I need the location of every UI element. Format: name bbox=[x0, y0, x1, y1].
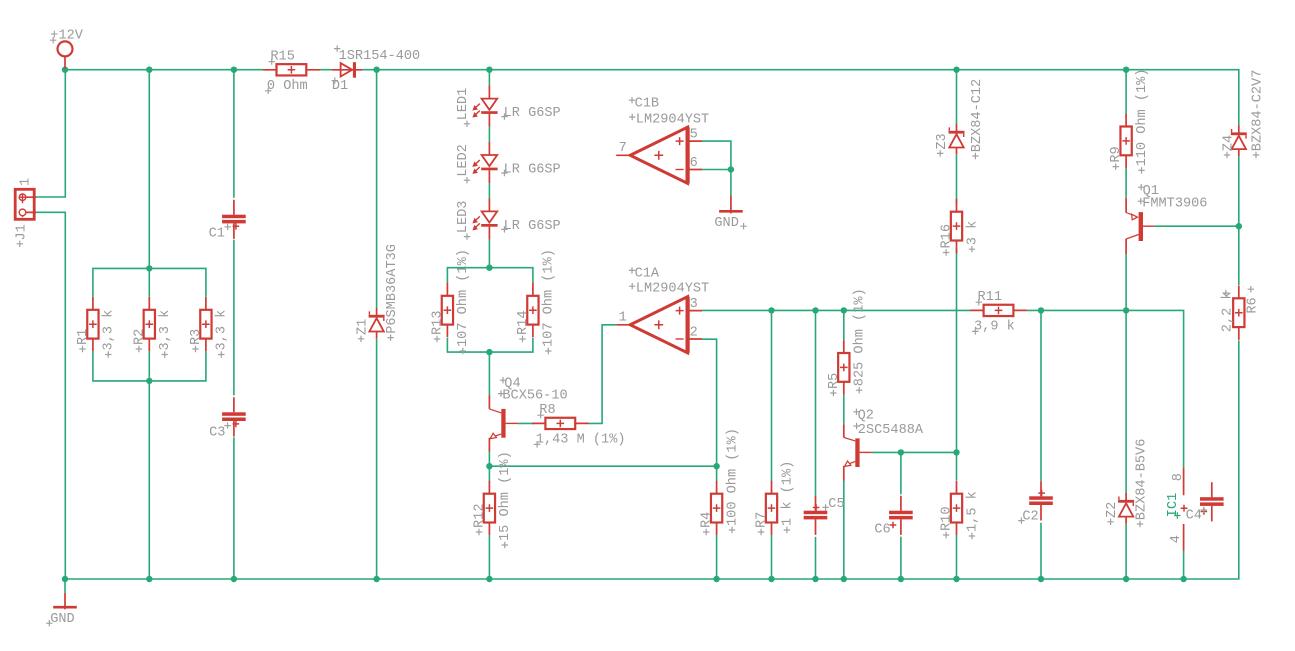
svg-text:100 Ohm (1%): 100 Ohm (1%) bbox=[725, 428, 740, 526]
svg-text:C2: C2 bbox=[1022, 510, 1038, 525]
svg-text:3,3 k: 3,3 k bbox=[215, 310, 230, 351]
svg-text:IC1: IC1 bbox=[1166, 493, 1181, 517]
svg-text:BZX84-B5V6: BZX84-B5V6 bbox=[1135, 439, 1150, 521]
svg-text:R4: R4 bbox=[700, 512, 715, 528]
svg-text:BZX84-C12: BZX84-C12 bbox=[970, 79, 985, 152]
svg-text:BCX56-10: BCX56-10 bbox=[502, 389, 567, 404]
svg-text:GND: GND bbox=[714, 216, 738, 231]
svg-text:LM2904YST: LM2904YST bbox=[636, 112, 709, 127]
svg-text:5: 5 bbox=[690, 128, 698, 143]
svg-text:LED3: LED3 bbox=[456, 201, 471, 234]
svg-text:P6SMB36AT3G: P6SMB36AT3G bbox=[385, 244, 400, 334]
svg-text:LED2: LED2 bbox=[456, 144, 471, 177]
svg-text:+12V: +12V bbox=[50, 29, 83, 44]
svg-text:BZX84-C2V7: BZX84-C2V7 bbox=[1251, 70, 1266, 152]
svg-text:107 Ohm (1%): 107 Ohm (1%) bbox=[542, 249, 557, 347]
svg-text:LR G6SP: LR G6SP bbox=[504, 162, 561, 177]
svg-text:110 Ohm (1%): 110 Ohm (1%) bbox=[1135, 68, 1150, 166]
svg-text:LR G6SP: LR G6SP bbox=[504, 219, 561, 234]
svg-text:Q2: Q2 bbox=[858, 408, 874, 423]
svg-text:1 k (1%): 1 k (1%) bbox=[780, 461, 795, 526]
svg-text:3,9 k: 3,9 k bbox=[974, 319, 1015, 334]
svg-text:1: 1 bbox=[19, 178, 34, 186]
svg-text:825 Ohm (1%): 825 Ohm (1%) bbox=[853, 288, 868, 386]
svg-text:LED1: LED1 bbox=[456, 88, 471, 121]
svg-text:1,43 M (1%): 1,43 M (1%) bbox=[536, 432, 626, 447]
svg-text:R13: R13 bbox=[430, 311, 445, 335]
svg-text:3,3 k: 3,3 k bbox=[102, 310, 117, 351]
svg-text:R7: R7 bbox=[755, 512, 770, 528]
svg-text:6: 6 bbox=[690, 156, 698, 171]
svg-text:15 Ohm (1%): 15 Ohm (1%) bbox=[498, 451, 513, 541]
svg-text:R5: R5 bbox=[827, 373, 842, 389]
svg-text:C1A: C1A bbox=[635, 267, 660, 282]
svg-text:R6: R6 bbox=[1246, 297, 1261, 313]
svg-text:C6: C6 bbox=[874, 523, 890, 538]
svg-text:1: 1 bbox=[619, 311, 627, 326]
svg-text:Z1: Z1 bbox=[356, 319, 371, 335]
svg-text:2,2 k: 2,2 k bbox=[1221, 291, 1236, 332]
svg-text:1SR154-400: 1SR154-400 bbox=[339, 49, 421, 64]
svg-text:0 Ohm: 0 Ohm bbox=[267, 79, 308, 94]
svg-text:C5: C5 bbox=[828, 497, 844, 512]
svg-text:Z3: Z3 bbox=[935, 133, 950, 149]
svg-text:2SC5488A: 2SC5488A bbox=[858, 423, 924, 438]
svg-text:3,3 k: 3,3 k bbox=[158, 310, 173, 351]
svg-text:107 Ohm (1%): 107 Ohm (1%) bbox=[456, 249, 471, 347]
svg-text:R14: R14 bbox=[516, 311, 531, 335]
svg-text:R12: R12 bbox=[472, 504, 487, 528]
svg-text:R1: R1 bbox=[76, 329, 91, 345]
svg-text:R16: R16 bbox=[940, 224, 955, 248]
svg-text:LR G6SP: LR G6SP bbox=[504, 106, 561, 121]
svg-text:C1B: C1B bbox=[635, 96, 659, 111]
svg-text:J1: J1 bbox=[15, 224, 30, 240]
svg-text:R9: R9 bbox=[1109, 146, 1124, 162]
svg-text:4: 4 bbox=[1169, 535, 1184, 543]
svg-text:Z4: Z4 bbox=[1222, 135, 1237, 151]
svg-text:R2: R2 bbox=[132, 329, 147, 345]
svg-text:R3: R3 bbox=[189, 329, 204, 345]
svg-text:FMMT3906: FMMT3906 bbox=[1142, 197, 1207, 212]
svg-text:7: 7 bbox=[619, 141, 627, 156]
svg-text:3: 3 bbox=[690, 297, 698, 312]
svg-text:2: 2 bbox=[690, 325, 698, 340]
svg-text:C4: C4 bbox=[1186, 509, 1202, 524]
svg-text:GND: GND bbox=[50, 612, 74, 627]
svg-text:LM2904YST: LM2904YST bbox=[636, 281, 709, 296]
svg-text:3 k: 3 k bbox=[965, 221, 980, 245]
svg-text:R10: R10 bbox=[940, 507, 955, 531]
svg-text:Z2: Z2 bbox=[1105, 502, 1120, 518]
svg-text:1,5 k: 1,5 k bbox=[965, 491, 980, 532]
svg-text:C1: C1 bbox=[209, 227, 225, 242]
svg-text:C3: C3 bbox=[209, 426, 225, 441]
svg-text:8: 8 bbox=[1171, 473, 1186, 481]
